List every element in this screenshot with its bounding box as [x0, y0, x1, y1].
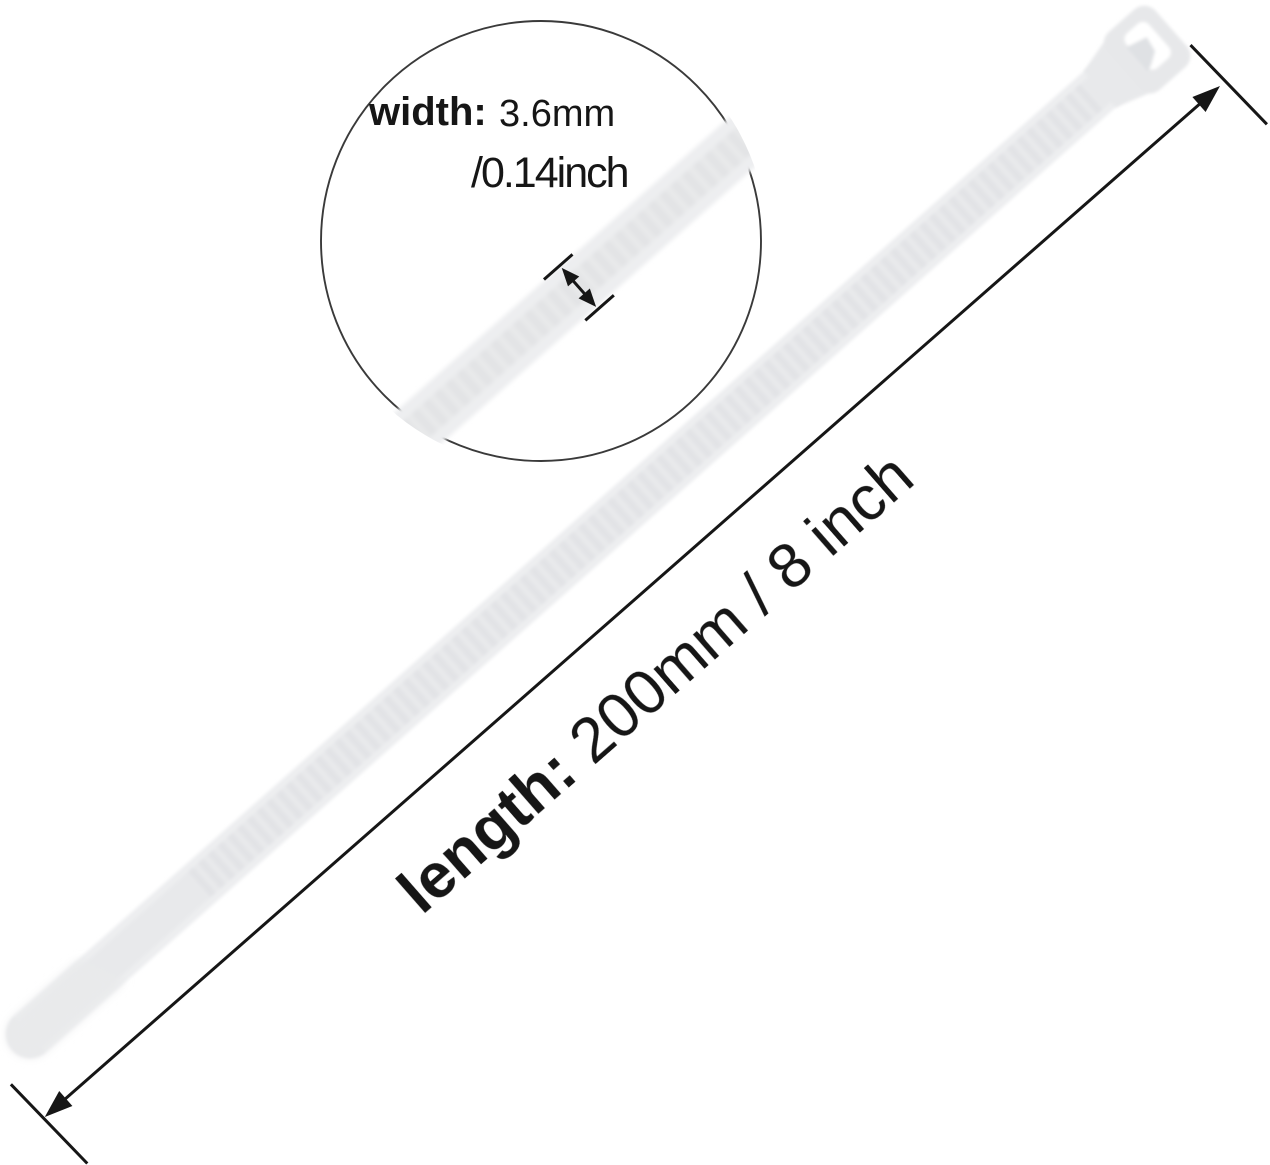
svg-text:width:: width:	[368, 90, 487, 134]
svg-text:3.6mm: 3.6mm	[499, 93, 615, 135]
svg-text:/0.14inch: /0.14inch	[471, 149, 628, 197]
